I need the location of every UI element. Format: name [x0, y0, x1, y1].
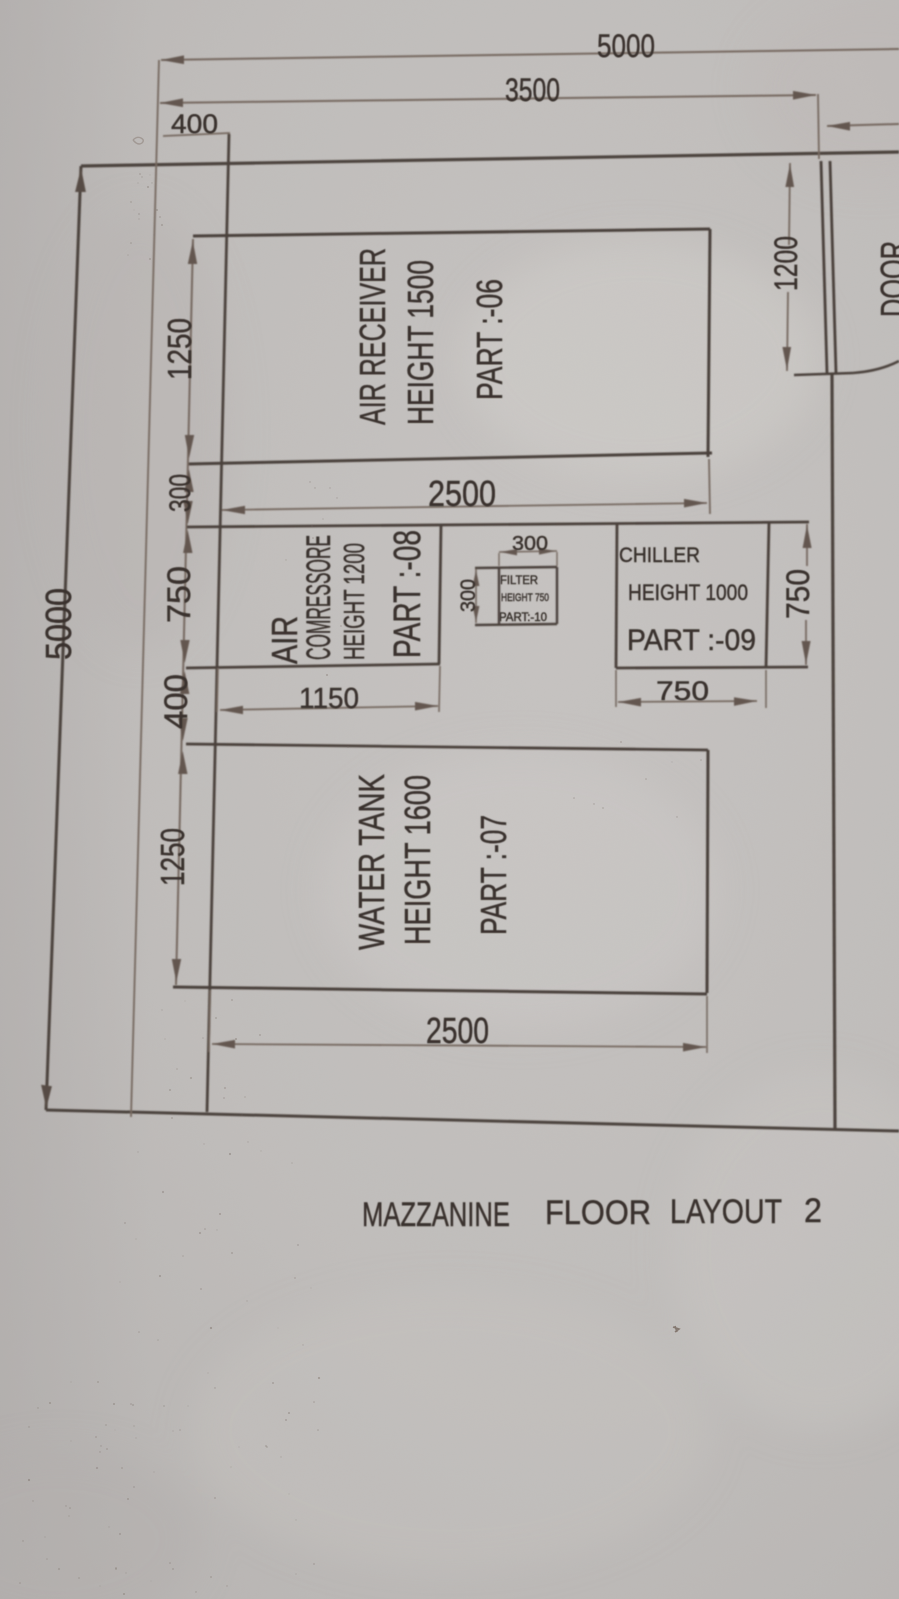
- svg-text:HEIGHT 1600: HEIGHT 1600: [397, 775, 438, 945]
- svg-text:1150: 1150: [299, 683, 359, 715]
- svg-text:MAZZANINE: MAZZANINE: [362, 1196, 510, 1234]
- svg-text:WATER TANK: WATER TANK: [351, 774, 392, 950]
- svg-text:750: 750: [656, 676, 709, 706]
- svg-text:2: 2: [804, 1192, 822, 1230]
- svg-text:300: 300: [457, 579, 480, 612]
- svg-text:1250: 1250: [161, 318, 198, 380]
- svg-text:PART :-08: PART :-08: [387, 530, 429, 658]
- svg-text:COMRESSORE: COMRESSORE: [300, 535, 338, 660]
- svg-text:HEIGHT 750: HEIGHT 750: [501, 592, 549, 604]
- svg-text:3500: 3500: [505, 72, 560, 108]
- svg-text:300: 300: [512, 533, 548, 555]
- svg-text:PART:-10: PART:-10: [499, 610, 547, 624]
- svg-text:PART :-09: PART :-09: [627, 624, 756, 657]
- svg-text:400: 400: [158, 674, 194, 729]
- svg-text:HEIGHT 1000: HEIGHT 1000: [628, 580, 748, 605]
- svg-text:HEIGHT 1500: HEIGHT 1500: [400, 260, 441, 425]
- svg-text:CHILLER: CHILLER: [619, 544, 700, 567]
- svg-text:2500: 2500: [428, 473, 496, 514]
- svg-text:AIR: AIR: [264, 616, 305, 664]
- svg-text:PART :-06: PART :-06: [469, 279, 510, 400]
- svg-text:750: 750: [161, 566, 197, 623]
- svg-text:400: 400: [171, 109, 218, 139]
- svg-text:2500: 2500: [426, 1010, 489, 1051]
- svg-text:300: 300: [164, 474, 197, 512]
- svg-text:PART :-07: PART :-07: [473, 815, 514, 935]
- svg-text:FLOOR: FLOOR: [545, 1194, 651, 1232]
- svg-text:5000: 5000: [38, 588, 79, 660]
- svg-text:AIR RECEIVER: AIR RECEIVER: [352, 248, 393, 425]
- svg-text:LAYOUT: LAYOUT: [670, 1193, 782, 1231]
- svg-text:750: 750: [780, 569, 816, 619]
- svg-text:1200: 1200: [768, 236, 804, 291]
- svg-text:5000: 5000: [597, 28, 655, 64]
- svg-text:FILTER: FILTER: [500, 573, 538, 587]
- svg-text:1250: 1250: [154, 828, 191, 886]
- svg-text:DOOR: DOOR: [873, 241, 899, 317]
- svg-text:HEIGHT 1200: HEIGHT 1200: [339, 543, 371, 660]
